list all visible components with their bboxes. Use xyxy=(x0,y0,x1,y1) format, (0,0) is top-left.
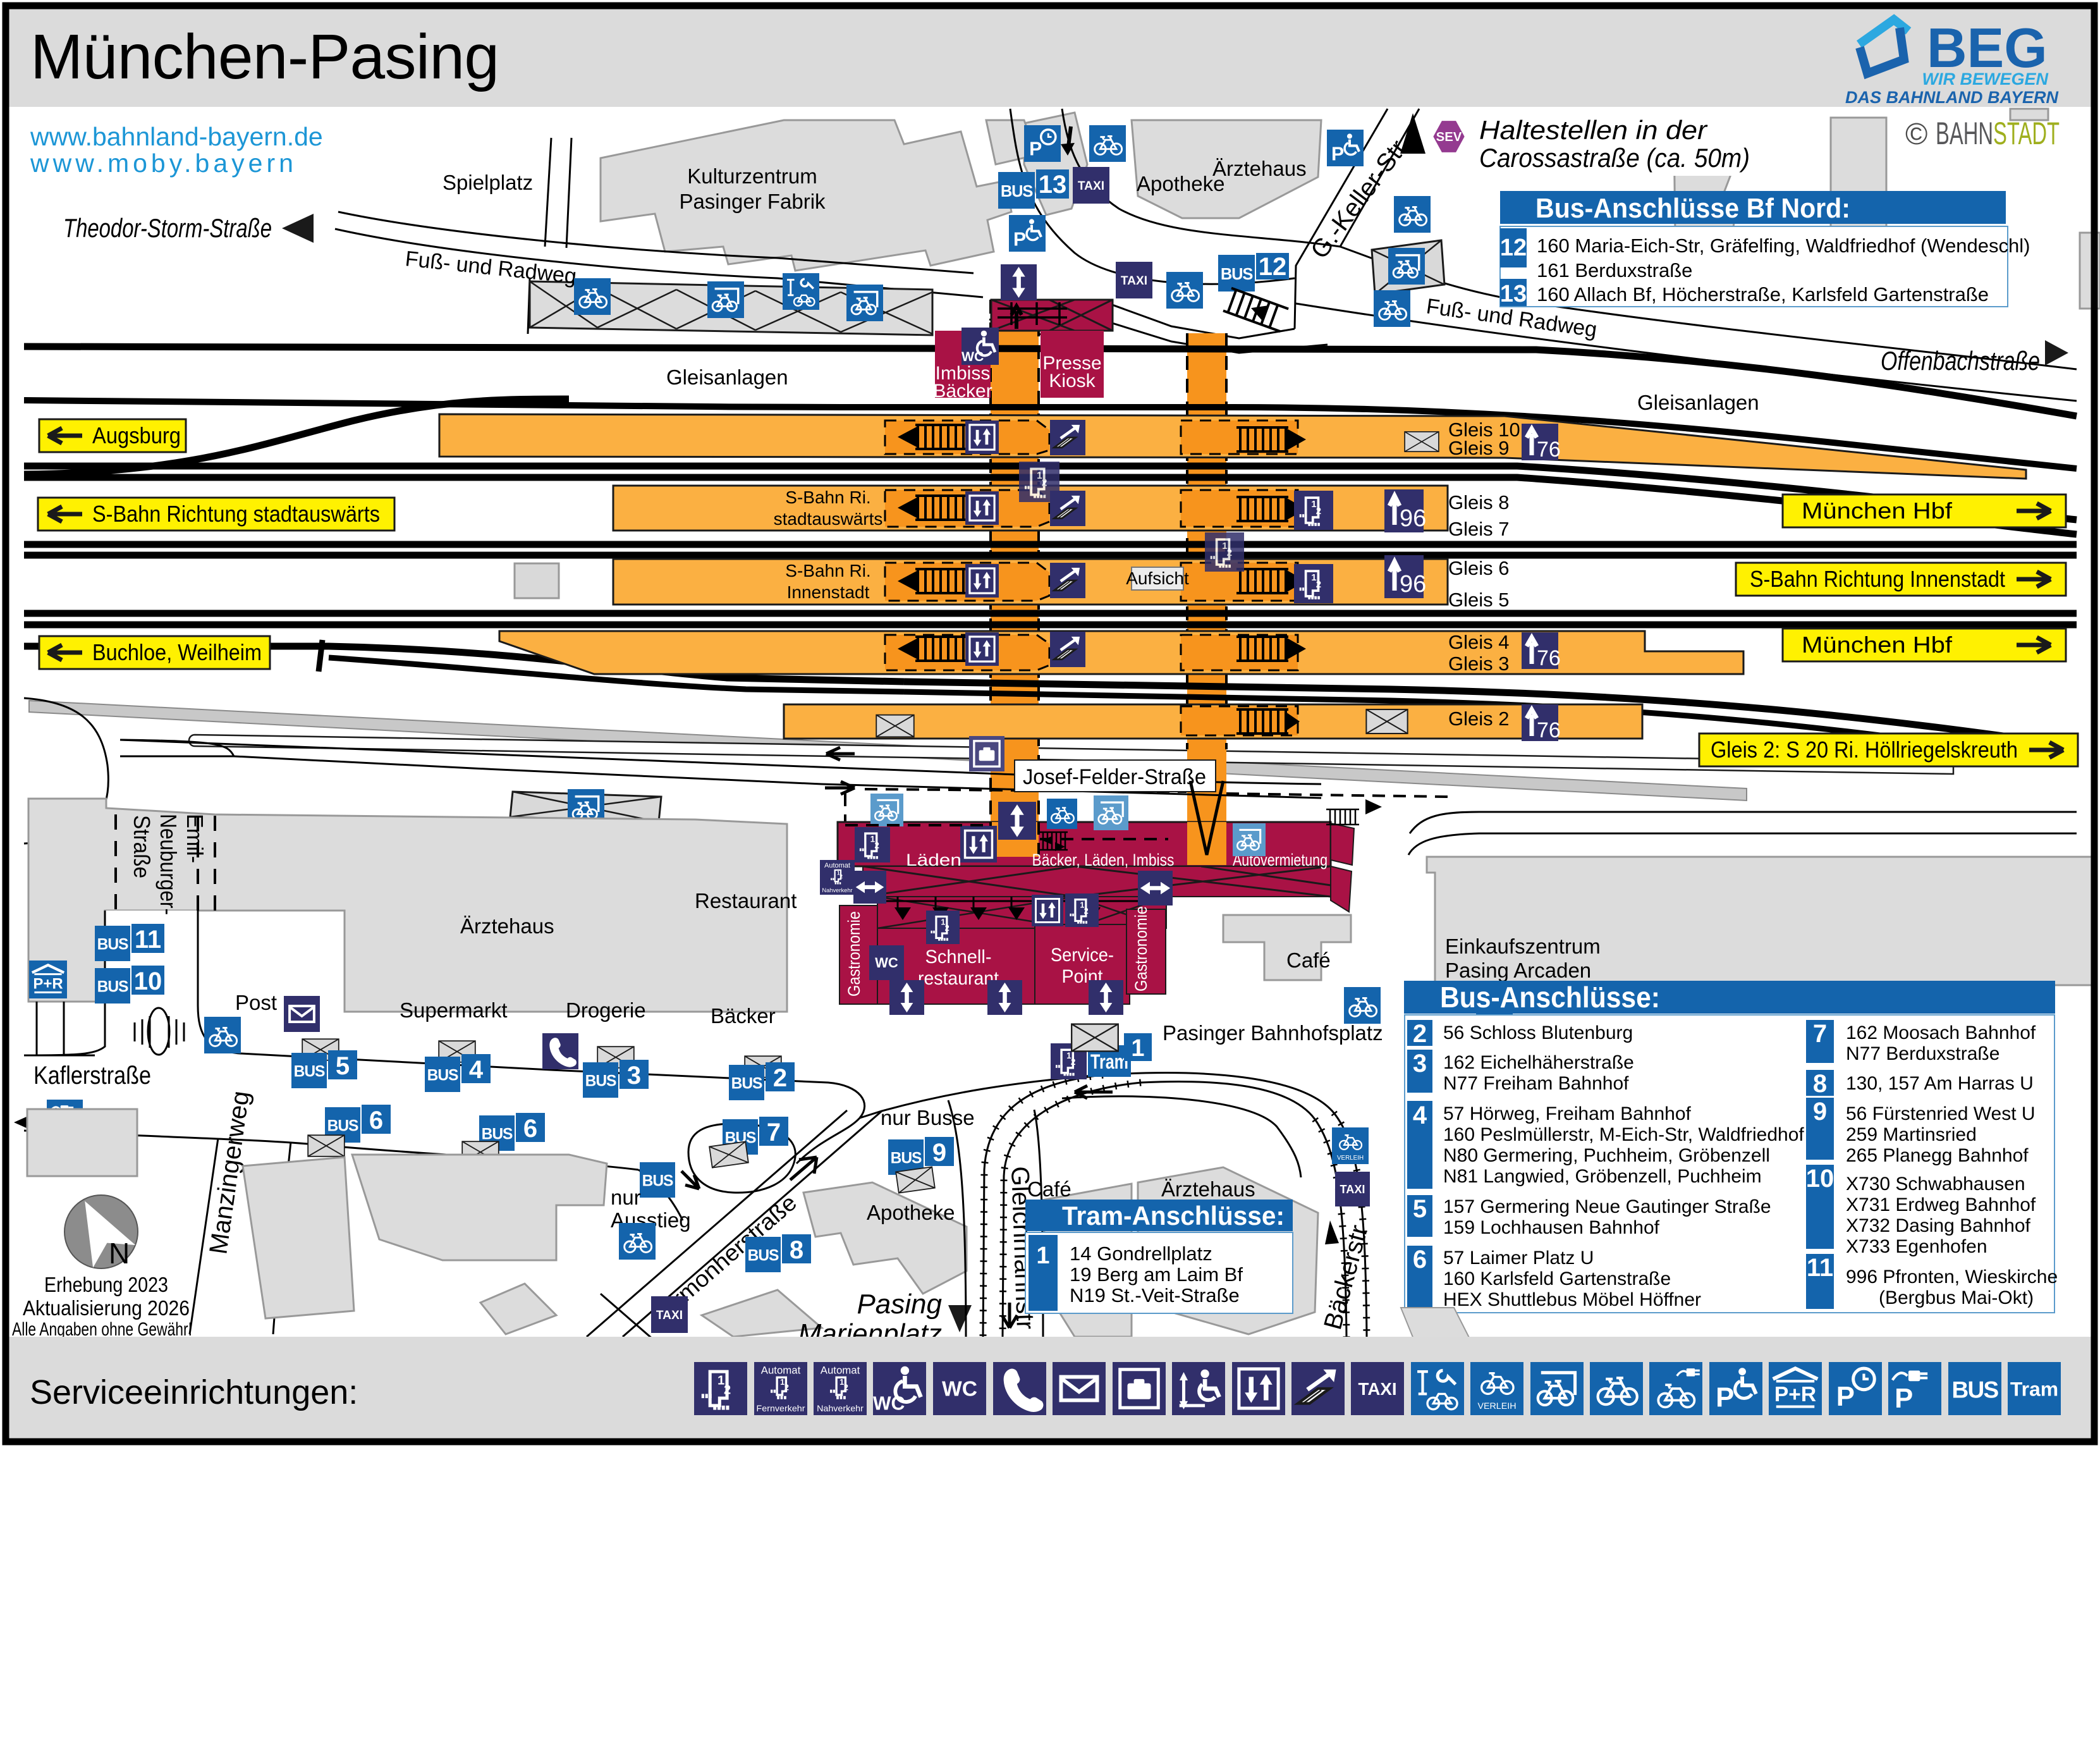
svg-text:Gleis 3: Gleis 3 xyxy=(1448,653,1509,675)
svg-text:N80 Germering, Puchheim, Gröbe: N80 Germering, Puchheim, Gröbenzell xyxy=(1443,1145,1770,1166)
svg-text:9: 9 xyxy=(1813,1098,1827,1126)
svg-text:Kulturzentrum: Kulturzentrum xyxy=(687,164,817,188)
svg-text:München Hbf: München Hbf xyxy=(1802,632,1953,658)
svg-text:6: 6 xyxy=(369,1107,383,1134)
svg-text:8: 8 xyxy=(1813,1070,1827,1098)
svg-text:Läden: Läden xyxy=(906,850,961,869)
svg-text:Gleis 4: Gleis 4 xyxy=(1448,631,1509,653)
svg-text:6: 6 xyxy=(1413,1246,1427,1274)
svg-text:Tram: Tram xyxy=(1090,1050,1128,1073)
svg-text:Josef-Felder-Straße: Josef-Felder-Straße xyxy=(1023,765,1206,789)
svg-text:Gleis 2: S 20 Ri. Höllriegelsk: Gleis 2: S 20 Ri. Höllriegelskreuth xyxy=(1711,737,2018,763)
svg-text:X730 Schwabhausen: X730 Schwabhausen xyxy=(1846,1174,2025,1194)
svg-text:nur: nur xyxy=(611,1186,641,1209)
svg-text:2: 2 xyxy=(1413,1020,1427,1048)
svg-text:Ärztehaus: Ärztehaus xyxy=(1161,1177,1255,1201)
svg-text:160 Maria-Eich-Str, Gräfelfing: 160 Maria-Eich-Str, Gräfelfing, Waldfrie… xyxy=(1537,235,2030,257)
svg-text:Gleis 8: Gleis 8 xyxy=(1448,491,1509,513)
svg-text:96: 96 xyxy=(1400,505,1426,532)
svg-text:Restaurant: Restaurant xyxy=(695,889,797,912)
svg-text:Innenstadt: Innenstadt xyxy=(787,582,870,602)
svg-text:5: 5 xyxy=(1413,1195,1427,1223)
svg-text:Offenbachstraße: Offenbachstraße xyxy=(1881,346,2040,376)
svg-text:HEX Shuttlebus Möbel Höffner: HEX Shuttlebus Möbel Höffner xyxy=(1443,1289,1701,1310)
svg-text:Service-: Service- xyxy=(1051,945,1114,966)
svg-text:Serviceeinrichtungen:: Serviceeinrichtungen: xyxy=(30,1373,358,1411)
svg-text:57 Hörweg, Freiham Bahnhof: 57 Hörweg, Freiham Bahnhof xyxy=(1443,1103,1692,1124)
svg-text:www.bahnland-bayern.de: www.bahnland-bayern.de xyxy=(30,122,323,151)
svg-text:Gleis 2: Gleis 2 xyxy=(1448,708,1509,730)
svg-text:Gastronomie: Gastronomie xyxy=(1132,906,1151,991)
svg-text:13: 13 xyxy=(1500,281,1527,307)
svg-text:5: 5 xyxy=(336,1052,350,1080)
svg-text:Bäcker: Bäcker xyxy=(711,1004,776,1028)
svg-text:Gleis 5: Gleis 5 xyxy=(1448,589,1509,611)
svg-text:161 Berduxstraße: 161 Berduxstraße xyxy=(1537,259,1692,281)
svg-text:Straße: Straße xyxy=(129,815,155,878)
svg-text:2: 2 xyxy=(773,1064,787,1092)
svg-text:259 Martinsried: 259 Martinsried xyxy=(1846,1124,1977,1145)
svg-text:56 Fürstenried West U: 56 Fürstenried West U xyxy=(1846,1103,2036,1124)
svg-text:Apotheke: Apotheke xyxy=(1137,172,1224,195)
svg-text:DAS BAHNLAND BAYERN: DAS BAHNLAND BAYERN xyxy=(1845,88,2059,107)
svg-text:Augsburg: Augsburg xyxy=(92,422,181,448)
svg-text:S-Bahn Richtung stadtauswärts: S-Bahn Richtung stadtauswärts xyxy=(92,501,380,527)
svg-text:N77 Freiham Bahnhof: N77 Freiham Bahnhof xyxy=(1443,1073,1629,1094)
svg-text:Supermarkt: Supermarkt xyxy=(400,998,508,1022)
svg-text:130, 157 Am Harras U: 130, 157 Am Harras U xyxy=(1846,1073,2034,1094)
svg-text:159 Lochhausen Bahnhof: 159 Lochhausen Bahnhof xyxy=(1443,1217,1660,1238)
svg-text:S-Bahn Richtung Innenstadt: S-Bahn Richtung Innenstadt xyxy=(1750,566,2005,592)
svg-text:13: 13 xyxy=(1039,171,1067,199)
svg-text:6: 6 xyxy=(523,1115,537,1143)
svg-text:11: 11 xyxy=(1807,1254,1833,1282)
svg-text:56 Schloss Blutenburg: 56 Schloss Blutenburg xyxy=(1443,1022,1633,1043)
svg-text:WIR BEWEGEN: WIR BEWEGEN xyxy=(1922,70,2049,89)
svg-text:S-Bahn Ri.: S-Bahn Ri. xyxy=(785,488,870,507)
svg-text:Emil-: Emil- xyxy=(182,814,208,863)
svg-text:Kaflerstraße: Kaflerstraße xyxy=(34,1062,151,1089)
svg-text:Gleis 7: Gleis 7 xyxy=(1448,518,1509,540)
svg-text:Spielplatz: Spielplatz xyxy=(443,171,533,194)
svg-text:1: 1 xyxy=(1036,1243,1049,1269)
svg-text:Bäcker: Bäcker xyxy=(933,381,992,402)
svg-text:N77 Berduxstraße: N77 Berduxstraße xyxy=(1846,1043,1999,1064)
svg-text:157 Germering Neue Gautinger S: 157 Germering Neue Gautinger Straße xyxy=(1443,1196,1771,1217)
svg-text:Café: Café xyxy=(1027,1177,1071,1201)
svg-text:restaurant: restaurant xyxy=(918,968,999,989)
svg-text:Gleis 9: Gleis 9 xyxy=(1448,437,1509,459)
svg-text:162 Moosach Bahnhof: 162 Moosach Bahnhof xyxy=(1846,1022,2036,1043)
svg-text:Aufsicht: Aufsicht xyxy=(1126,568,1189,588)
svg-text:10: 10 xyxy=(134,967,162,995)
svg-text:Gleisanlagen: Gleisanlagen xyxy=(666,365,788,389)
svg-text:57 Laimer Platz U: 57 Laimer Platz U xyxy=(1443,1248,1594,1268)
svg-text:Pasing: Pasing xyxy=(857,1289,942,1320)
svg-text:Schnell-: Schnell- xyxy=(925,947,992,967)
svg-text:7: 7 xyxy=(1813,1020,1827,1048)
svg-text:96: 96 xyxy=(1400,571,1426,598)
svg-text:Carossastraße (ca. 50m): Carossastraße (ca. 50m) xyxy=(1479,143,1750,173)
svg-text:(Bergbus Mai-Okt): (Bergbus Mai-Okt) xyxy=(1879,1287,2034,1308)
svg-text:4: 4 xyxy=(469,1056,484,1084)
svg-text:9: 9 xyxy=(932,1139,946,1167)
svg-text:76: 76 xyxy=(1537,438,1561,462)
svg-text:Pasinger Bahnhofsplatz: Pasinger Bahnhofsplatz xyxy=(1163,1021,1383,1045)
svg-text:Gastronomie: Gastronomie xyxy=(845,911,864,997)
svg-text:162 Eichelhäherstraße: 162 Eichelhäherstraße xyxy=(1443,1052,1634,1073)
svg-text:stadtauswärts: stadtauswärts xyxy=(774,509,883,529)
svg-text:Drogerie: Drogerie xyxy=(566,998,646,1022)
svg-text:11: 11 xyxy=(135,926,161,954)
svg-text:Erhebung 2023: Erhebung 2023 xyxy=(44,1273,168,1296)
svg-text:76: 76 xyxy=(1537,718,1561,742)
svg-text:nur Busse: nur Busse xyxy=(881,1106,975,1129)
svg-text:Apotheke: Apotheke xyxy=(867,1201,955,1224)
svg-text:©: © xyxy=(1905,118,1927,151)
svg-text:Bus-Anschlüsse Bf Nord:: Bus-Anschlüsse Bf Nord: xyxy=(1535,193,1850,224)
svg-text:12: 12 xyxy=(1259,253,1287,281)
svg-text:76: 76 xyxy=(1537,646,1561,670)
svg-text:10: 10 xyxy=(1806,1165,1834,1193)
svg-text:3: 3 xyxy=(627,1062,641,1089)
svg-text:7: 7 xyxy=(767,1119,781,1146)
svg-text:S-Bahn Ri.: S-Bahn Ri. xyxy=(785,561,870,580)
svg-text:Einkaufszentrum: Einkaufszentrum xyxy=(1445,935,1601,958)
svg-text:N81 Langwied, Gröbenzell, Puch: N81 Langwied, Gröbenzell, Puchheim xyxy=(1443,1166,1762,1187)
svg-text:14 Gondrellplatz: 14 Gondrellplatz xyxy=(1070,1243,1212,1265)
svg-text:Haltestellen in der: Haltestellen in der xyxy=(1479,115,1708,145)
svg-text:Theodor-Storm-Straße: Theodor-Storm-Straße xyxy=(63,213,272,243)
svg-text:Gleisanlagen: Gleisanlagen xyxy=(1637,391,1759,414)
svg-text:Ärztehaus: Ärztehaus xyxy=(460,914,554,938)
svg-text:19 Berg am Laim Bf: 19 Berg am Laim Bf xyxy=(1070,1263,1243,1286)
svg-text:160 Peslmüllerstr, M-Eich-Str,: 160 Peslmüllerstr, M-Eich-Str, Waldfried… xyxy=(1443,1124,1804,1145)
svg-text:8: 8 xyxy=(790,1236,803,1264)
svg-text:1: 1 xyxy=(1131,1035,1144,1062)
svg-text:N: N xyxy=(109,1237,130,1270)
svg-text:Pasinger Fabrik: Pasinger Fabrik xyxy=(679,190,826,213)
svg-text:X731 Erdweg Bahnhof: X731 Erdweg Bahnhof xyxy=(1846,1194,2036,1215)
svg-text:München Hbf: München Hbf xyxy=(1802,498,1953,524)
svg-text:Post: Post xyxy=(235,991,277,1014)
svg-text:Pasing Arcaden: Pasing Arcaden xyxy=(1445,959,1591,982)
svg-text:X732 Dasing Bahnhof: X732 Dasing Bahnhof xyxy=(1846,1215,2031,1236)
svg-text:3: 3 xyxy=(1413,1050,1427,1077)
svg-text:160 Allach Bf, Höcherstraße, K: 160 Allach Bf, Höcherstraße, Karlsfeld G… xyxy=(1537,283,1989,305)
svg-text:X733 Egenhofen: X733 Egenhofen xyxy=(1846,1236,1987,1257)
svg-text:Buchloe, Weilheim: Buchloe, Weilheim xyxy=(92,639,262,665)
svg-text:265 Planegg Bahnhof: 265 Planegg Bahnhof xyxy=(1846,1145,2029,1166)
svg-text:4: 4 xyxy=(1413,1102,1427,1129)
svg-text:996 Pfronten, Wieskirche: 996 Pfronten, Wieskirche xyxy=(1846,1267,2058,1287)
svg-text:Gleis 6: Gleis 6 xyxy=(1448,557,1509,579)
svg-text:Bus-Anschlüsse:: Bus-Anschlüsse: xyxy=(1440,981,1660,1014)
svg-text:Aktualisierung 2026: Aktualisierung 2026 xyxy=(23,1296,190,1320)
svg-text:München-Pasing: München-Pasing xyxy=(30,21,499,92)
svg-text:Café: Café xyxy=(1286,948,1331,972)
svg-text:Bäcker, Läden, Imbiss: Bäcker, Läden, Imbiss xyxy=(1032,850,1175,869)
svg-text:N19 St.-Veit-Straße: N19 St.-Veit-Straße xyxy=(1070,1284,1240,1306)
svg-text:12: 12 xyxy=(1500,235,1527,261)
svg-text:Ärztehaus: Ärztehaus xyxy=(1212,157,1307,180)
svg-text:www.moby.bayern: www.moby.bayern xyxy=(30,149,297,178)
svg-text:Tram-Anschlüsse:: Tram-Anschlüsse: xyxy=(1062,1201,1285,1231)
svg-text:160 Karlsfeld Gartenstraße: 160 Karlsfeld Gartenstraße xyxy=(1443,1268,1671,1289)
svg-text:Kiosk: Kiosk xyxy=(1049,371,1096,391)
svg-text:Neuburger-: Neuburger- xyxy=(156,814,181,915)
